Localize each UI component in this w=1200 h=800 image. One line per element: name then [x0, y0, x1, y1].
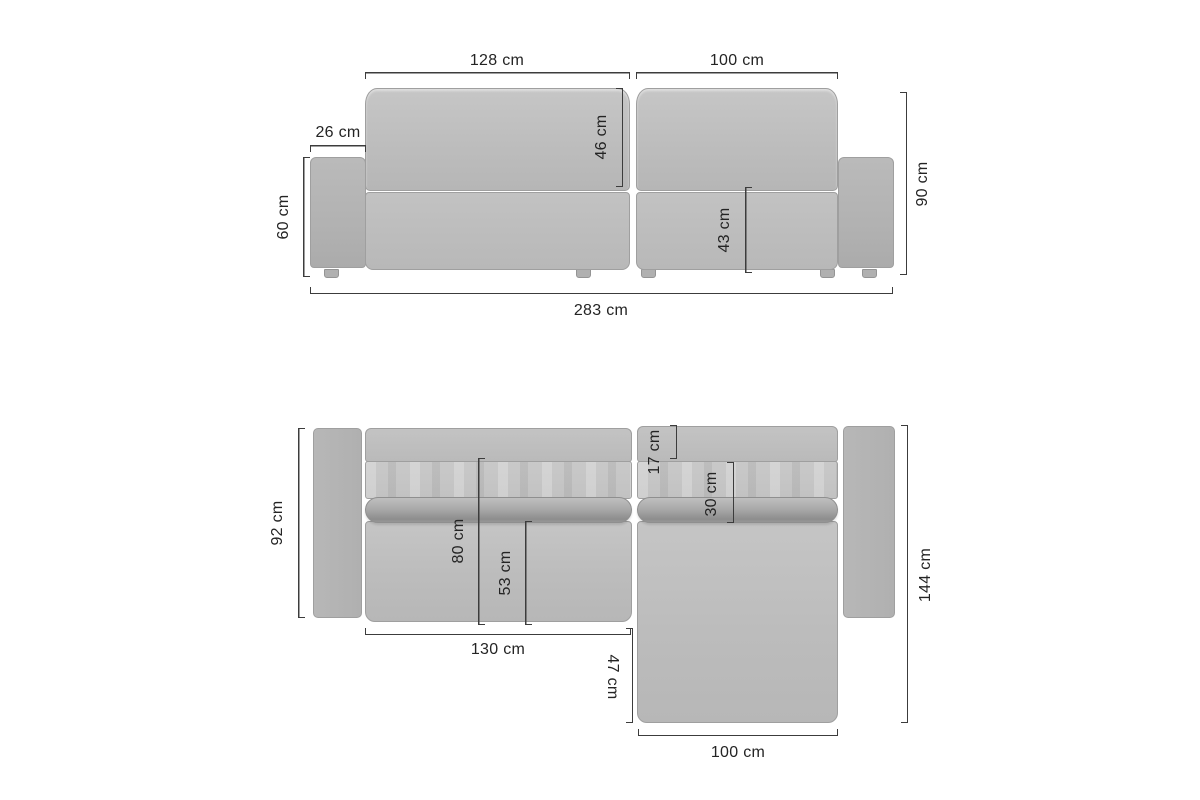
dimension-line-seat-area-depth	[478, 458, 485, 625]
armrest-left-top	[313, 428, 362, 618]
dimension-line-chaise-width	[638, 729, 838, 736]
top-view: 92 cm 17 cm 30 cm 80 cm 53 cm 144 cm 130…	[0, 0, 1200, 800]
dimension-line-overall-depth	[901, 425, 908, 723]
dim-label-backrest-depth: 30 cm	[703, 454, 721, 534]
dim-label-seat-cushion-depth: 53 cm	[497, 533, 515, 613]
backrest-cushion-band-right	[637, 461, 838, 499]
dimension-line-backrest-depth	[727, 462, 734, 523]
sofa-dimension-diagram: 128 cm 100 cm 26 cm 46 cm 60 cm 43 cm 90…	[0, 0, 1200, 800]
dimension-line-seat-cushion-depth	[525, 521, 532, 625]
dimension-line-seat-width	[365, 628, 631, 635]
dim-label-armrest-depth: 92 cm	[269, 483, 287, 563]
armrest-right-top	[843, 426, 895, 618]
dim-label-seat-area-depth: 80 cm	[450, 501, 468, 581]
dim-label-chaise-width: 100 cm	[688, 744, 788, 762]
dim-label-chaise-extension-depth: 47 cm	[603, 637, 621, 717]
back-top-strip-right	[637, 426, 838, 462]
chaise-seat	[637, 521, 838, 723]
bolster-right	[637, 497, 838, 523]
dim-label-seat-width: 130 cm	[448, 641, 548, 659]
dimension-line-chaise-extension-depth	[626, 628, 633, 723]
dim-label-back-top-depth: 17 cm	[646, 412, 664, 492]
dimension-line-armrest-depth	[298, 428, 305, 618]
back-top-strip-left	[365, 428, 632, 462]
bolster-left	[365, 497, 632, 523]
backrest-cushion-band-left	[365, 461, 632, 499]
dim-label-overall-depth: 144 cm	[917, 535, 935, 615]
dimension-line-back-top-depth	[670, 425, 677, 459]
